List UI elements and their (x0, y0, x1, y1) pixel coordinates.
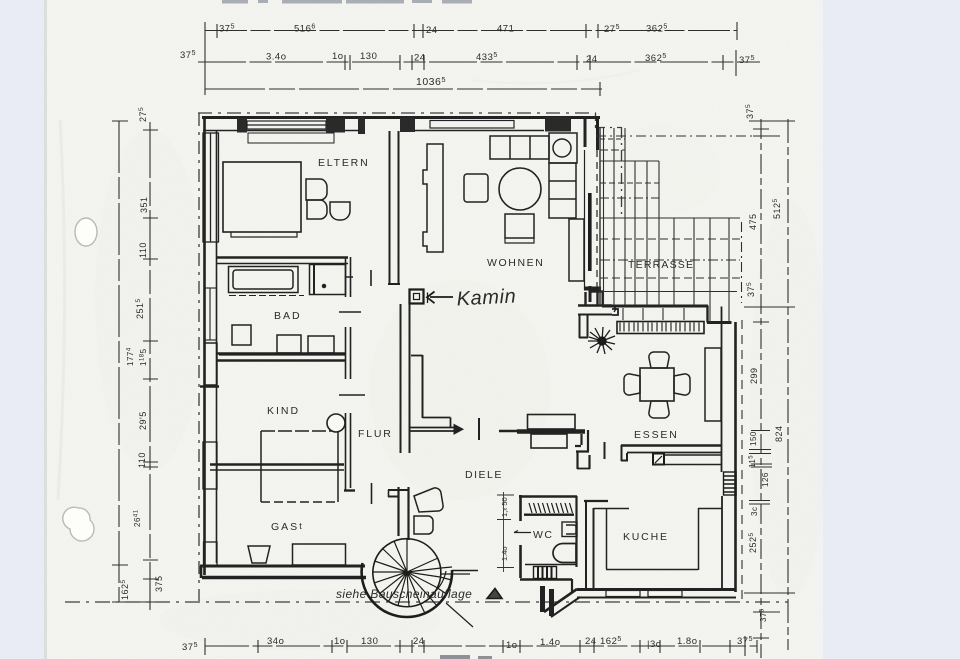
svg-text:GASt: GASt (271, 521, 304, 533)
svg-text:24: 24 (413, 636, 425, 647)
svg-text:475: 475 (748, 213, 758, 230)
svg-text:375: 375 (154, 575, 164, 592)
svg-text:1.4o: 1.4o (500, 546, 509, 561)
svg-text:ELTERN: ELTERN (318, 157, 369, 169)
svg-text:299: 299 (749, 367, 759, 384)
svg-text:DIELE: DIELE (465, 469, 503, 481)
svg-text:WOHNEN: WOHNEN (487, 257, 544, 269)
svg-text:KUCHE: KUCHE (623, 531, 669, 543)
svg-text:150: 150 (749, 431, 758, 446)
svg-text:29'5: 29'5 (138, 411, 148, 430)
svg-text:1o: 1o (334, 636, 346, 647)
svg-text:3c: 3c (750, 507, 759, 516)
svg-text:130: 130 (361, 636, 378, 647)
svg-text:Kamin: Kamin (456, 285, 517, 310)
svg-text:KIND: KIND (267, 405, 300, 417)
svg-text:24: 24 (585, 636, 597, 647)
svg-text:siehe Bauscheinauflage: siehe Bauscheinauflage (336, 587, 472, 601)
svg-text:824: 824 (774, 425, 784, 442)
svg-text:TERRASSE: TERRASSE (628, 259, 694, 271)
svg-text:1.4o: 1.4o (540, 637, 561, 648)
svg-text:351: 351 (139, 196, 149, 213)
svg-text:24: 24 (586, 54, 598, 65)
svg-text:ESSEN: ESSEN (634, 429, 679, 441)
svg-text:|3o: |3o (647, 639, 662, 650)
svg-text:130: 130 (360, 51, 377, 62)
svg-text:1o: 1o (506, 640, 518, 651)
svg-text:1,x 50: 1,x 50 (500, 497, 509, 517)
svg-text:110: 110 (137, 452, 147, 468)
svg-text:3.4o: 3.4o (266, 52, 287, 63)
svg-text:24: 24 (426, 25, 438, 36)
svg-text:126: 126 (761, 472, 770, 487)
svg-text:WC: WC (533, 529, 554, 541)
svg-text:34o: 34o (267, 636, 284, 647)
svg-text:1o: 1o (332, 51, 344, 62)
svg-text:110: 110 (138, 242, 148, 258)
svg-text:471: 471 (497, 24, 514, 35)
svg-text:24: 24 (414, 53, 426, 64)
svg-text:1.8o: 1.8o (677, 636, 698, 647)
svg-text:BAD: BAD (274, 310, 302, 322)
svg-text:FLUR: FLUR (358, 428, 393, 440)
